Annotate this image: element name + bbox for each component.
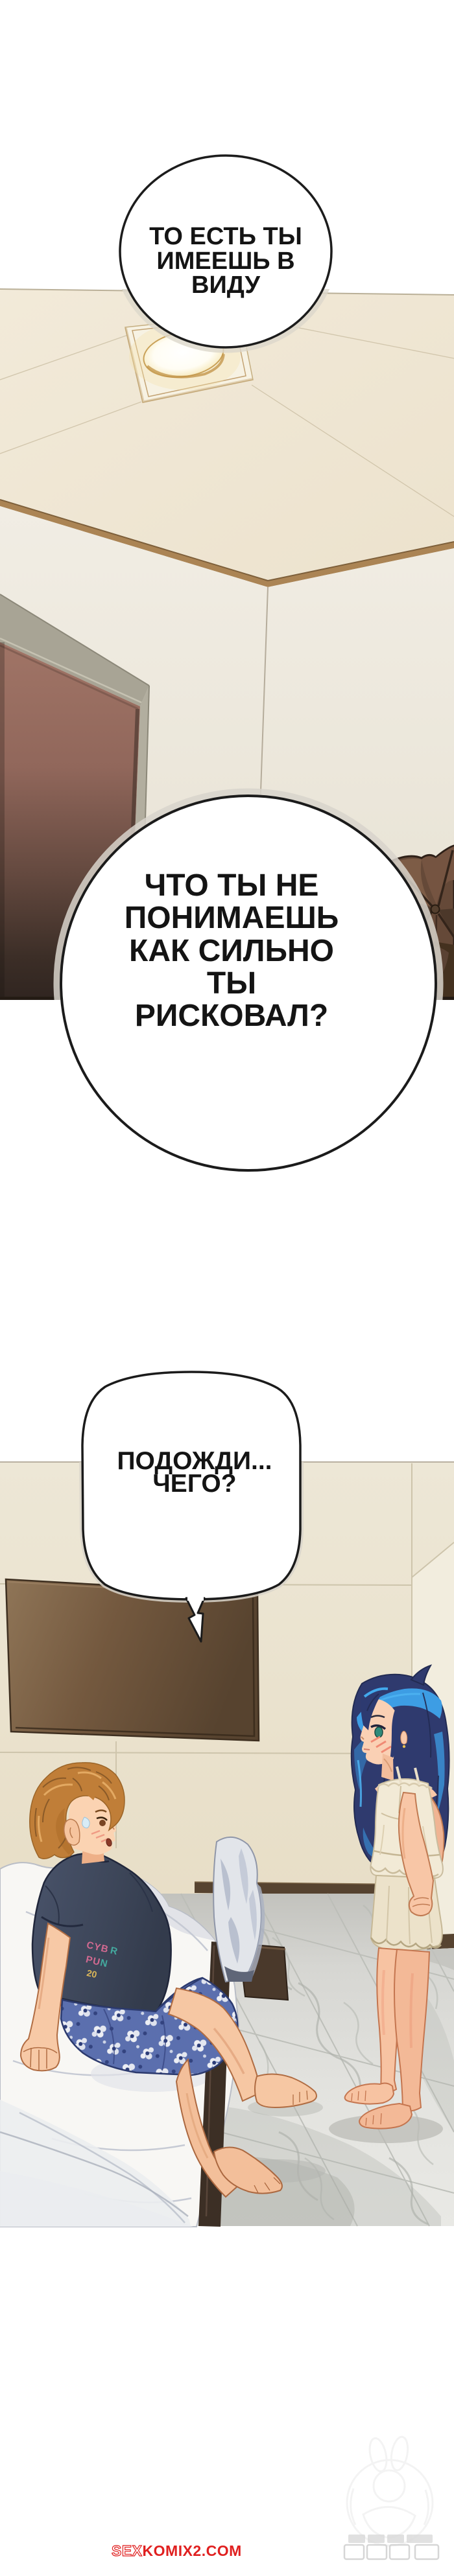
svg-text:ПОНИМАЕШЬ: ПОНИМАЕШЬ (125, 901, 339, 935)
svg-text:ТЫ: ТЫ (207, 966, 256, 1001)
svg-text:SEXKOMIX2.COM: SEXKOMIX2.COM (112, 2542, 242, 2559)
svg-text:ИМЕЕШЬ В: ИМЕЕШЬ В (156, 248, 294, 275)
svg-text:КАК СИЛЬНО: КАК СИЛЬНО (129, 934, 334, 968)
svg-text:РИСКОВАЛ?: РИСКОВАЛ? (135, 999, 328, 1033)
svg-text:ЧТО ТЫ НЕ: ЧТО ТЫ НЕ (145, 868, 319, 903)
svg-text:ЧЕГО?: ЧЕГО? (152, 1470, 236, 1498)
svg-text:ТО ЕСТЬ ТЫ: ТО ЕСТЬ ТЫ (149, 223, 302, 250)
svg-text:ВИДУ: ВИДУ (191, 272, 260, 299)
